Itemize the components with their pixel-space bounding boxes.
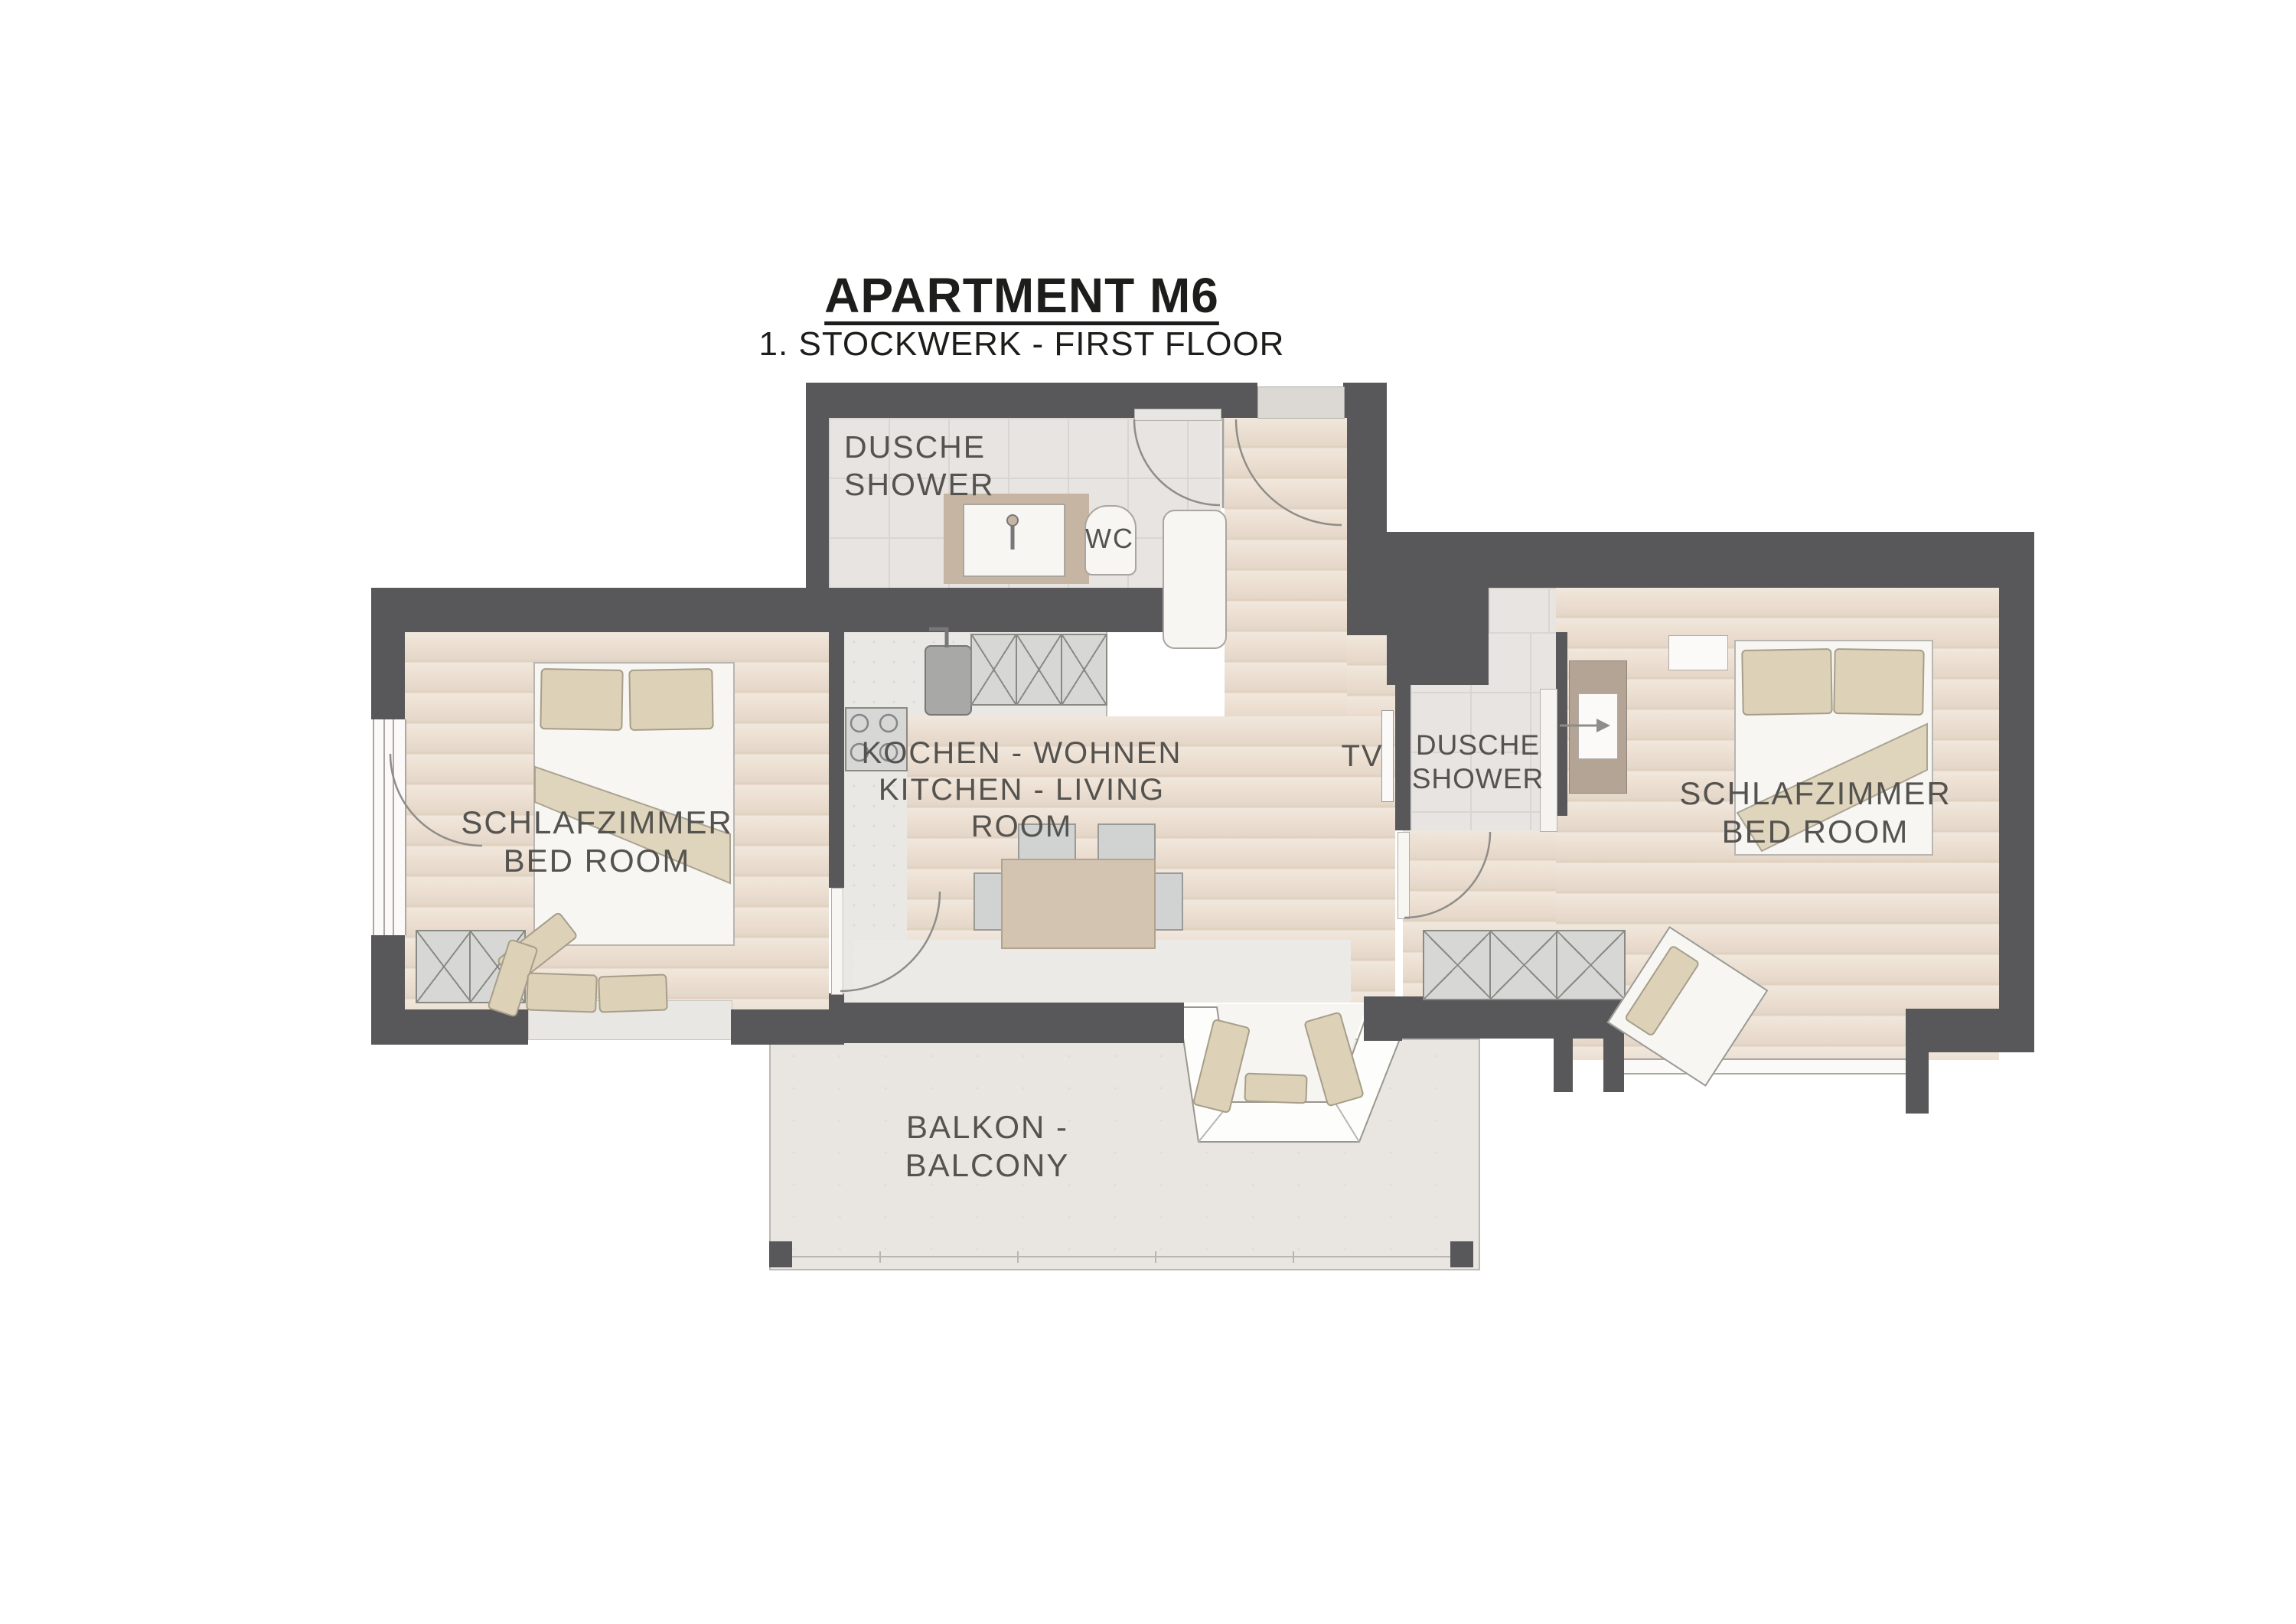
closet-direction-arrow bbox=[1560, 719, 1610, 732]
room-label-tv: TV bbox=[1330, 738, 1394, 774]
bedroom-left-door-arc bbox=[840, 892, 940, 991]
room-label-balcony: BALKON - BALCONY bbox=[796, 1108, 1179, 1185]
floor-plan-page: APARTMENT M6 1. STOCKWERK - FIRST FLOOR … bbox=[0, 0, 2296, 1624]
faucet-icons bbox=[929, 515, 1018, 647]
room-label-bathroom-top: DUSCHE SHOWER bbox=[844, 429, 1074, 504]
room-label-shower-right: DUSCHE SHOWER bbox=[1408, 729, 1548, 797]
bathroom-door-arc bbox=[1134, 419, 1220, 505]
bath-faucet-icon bbox=[1007, 515, 1018, 526]
entrance-door-arc bbox=[1236, 419, 1342, 525]
room-label-bedroom-right: SCHLAFZIMMER BED ROOM bbox=[1616, 774, 2014, 852]
shower-right-door-arc bbox=[1404, 832, 1490, 918]
page-title: APARTMENT M6 bbox=[716, 266, 1328, 325]
room-label-kitchen-living: KOCHEN - WOHNEN KITCHEN - LIVING ROOM bbox=[830, 735, 1213, 845]
door-arcs bbox=[390, 419, 1490, 991]
room-label-wc: WC bbox=[1071, 522, 1148, 555]
room-label-bedroom-left: SCHLAFZIMMER BED ROOM bbox=[398, 804, 796, 881]
page-subtitle: 1. STOCKWERK - FIRST FLOOR bbox=[716, 324, 1328, 365]
